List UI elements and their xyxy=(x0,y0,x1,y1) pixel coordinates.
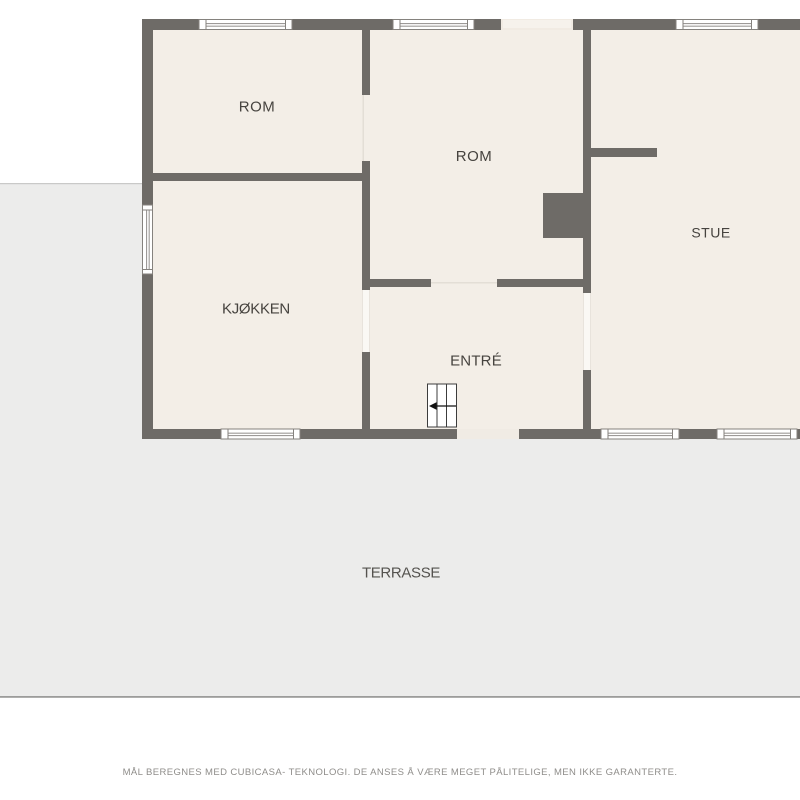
svg-text:STUE: STUE xyxy=(691,225,730,241)
svg-text:KJØKKEN: KJØKKEN xyxy=(222,301,290,318)
svg-text:TERRASSE: TERRASSE xyxy=(362,565,440,582)
svg-text:ROM: ROM xyxy=(239,99,276,116)
svg-text:ROM: ROM xyxy=(456,148,493,165)
svg-text:ENTRÉ: ENTRÉ xyxy=(450,353,502,370)
svg-text:MÅL BEREGNES MED CUBICASA- TEK: MÅL BEREGNES MED CUBICASA- TEKNOLOGI. DE… xyxy=(123,767,678,778)
